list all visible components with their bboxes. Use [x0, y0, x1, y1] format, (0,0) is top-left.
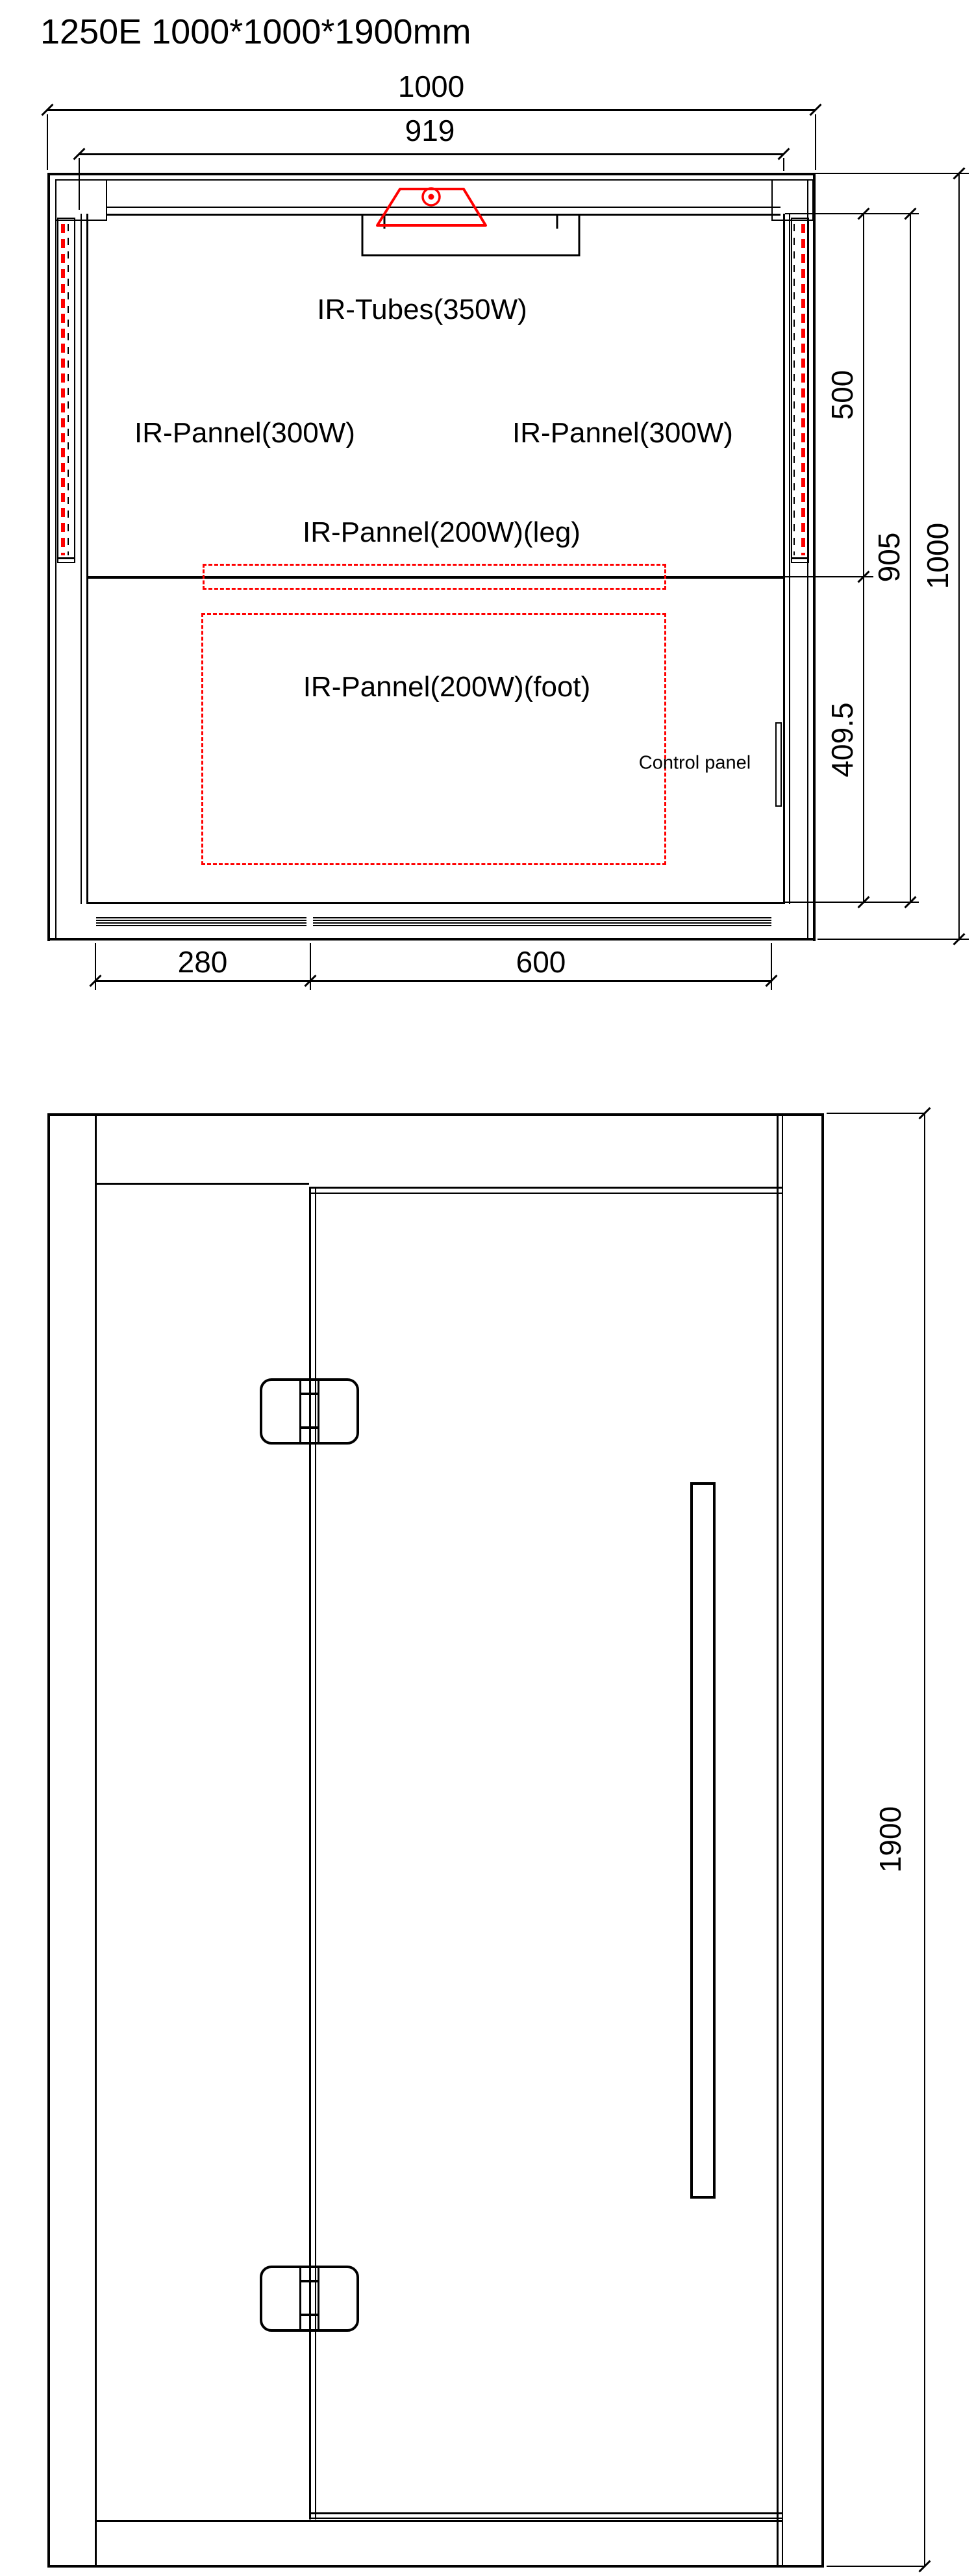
- dim-overall-height-label: 1900: [875, 1806, 905, 1873]
- door-hinge-bottom-pin-bar: [299, 2280, 319, 2282]
- door-bottom-line: [309, 2512, 783, 2514]
- door-right-edge-line: [777, 1116, 779, 2565]
- bottom-band-top-line: [95, 2520, 783, 2522]
- extension-line: [827, 2566, 925, 2567]
- header-bottom-line: [95, 1183, 309, 1185]
- door-hinge-bottom-pin-bar: [299, 2314, 319, 2316]
- right-stile-inner-line: [782, 1116, 783, 2565]
- door-top-line2: [309, 1193, 783, 1194]
- door-hinge-top-pin-bar: [299, 1426, 319, 1429]
- front-elevation-view: 1900: [0, 0, 974, 2576]
- dim-overall-height-line: [924, 1113, 925, 2567]
- extension-line: [827, 1113, 925, 1114]
- technical-drawing-page: 1250E 1000*1000*1900mm 1000 919: [0, 0, 974, 2576]
- door-hinge-top: [260, 1378, 359, 1445]
- door-hinge-bottom-knuckle-line: [318, 2266, 319, 2332]
- door-hinge-bottom: [260, 2266, 359, 2332]
- door-handle: [690, 1482, 716, 2199]
- left-stile-inner-line: [95, 1116, 97, 2565]
- door-hinge-top-knuckle-line: [318, 1378, 319, 1445]
- door-bottom-line2: [309, 2518, 783, 2519]
- door-hinge-top-knuckle-line: [299, 1378, 301, 1445]
- door-hinge-top-pin-bar: [299, 1393, 319, 1395]
- door-hinge-bottom-knuckle-line: [299, 2266, 301, 2332]
- door-top-line: [309, 1187, 783, 1189]
